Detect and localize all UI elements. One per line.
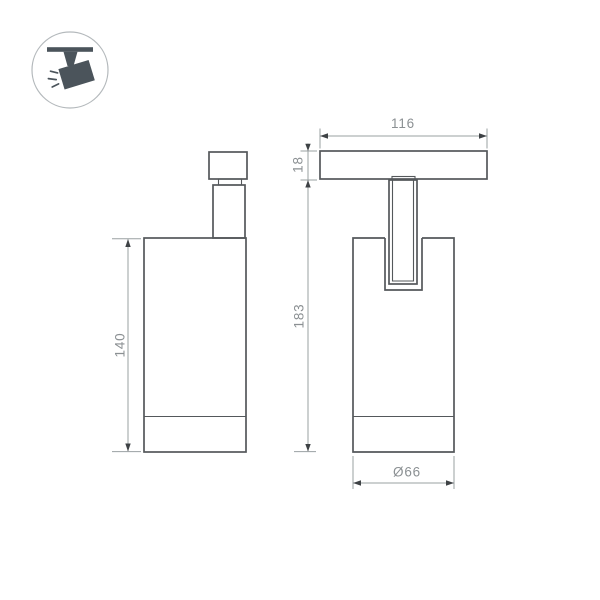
icon-track-bar [47,47,93,52]
dimension-label-track-height: 18 [291,156,306,173]
dimension-body-height: 140 [112,239,141,452]
dimension-label-body-height: 140 [113,333,128,358]
dimension-diameter: Ø66 [353,456,454,489]
arrowhead-left [320,133,328,138]
arrowhead-right [479,133,487,138]
front-track-adapter [209,152,247,179]
dimension-track-width: 116 [320,116,487,149]
arrowhead-down [305,144,310,151]
arrowhead-up [125,239,130,247]
side-view: 116 18 183 Ø66 [291,116,488,489]
dimension-heights: 18 183 [291,144,318,452]
arrowhead-left [353,480,361,485]
front-lamp-body [144,238,246,452]
arrowhead-down [125,444,130,452]
side-pivot-arm-outer [389,180,417,284]
track-spotlight-icon [32,32,108,108]
front-pivot-arm [213,185,245,238]
side-lamp-body [353,238,454,452]
dimension-label-diameter: Ø66 [393,465,421,480]
technical-drawing: 140 116 [0,0,600,600]
arrowhead-right [446,480,454,485]
side-pivot-arm-inner [393,181,414,282]
dimension-label-total-height: 183 [292,304,307,329]
front-adapter-neck [219,179,242,185]
drawing-canvas: 140 116 [0,0,600,600]
front-view: 140 [112,152,247,452]
side-track-profile [320,151,487,179]
dimension-label-track-width: 116 [391,116,415,131]
arrowhead-up [305,180,310,188]
arrowhead-down [305,444,310,452]
